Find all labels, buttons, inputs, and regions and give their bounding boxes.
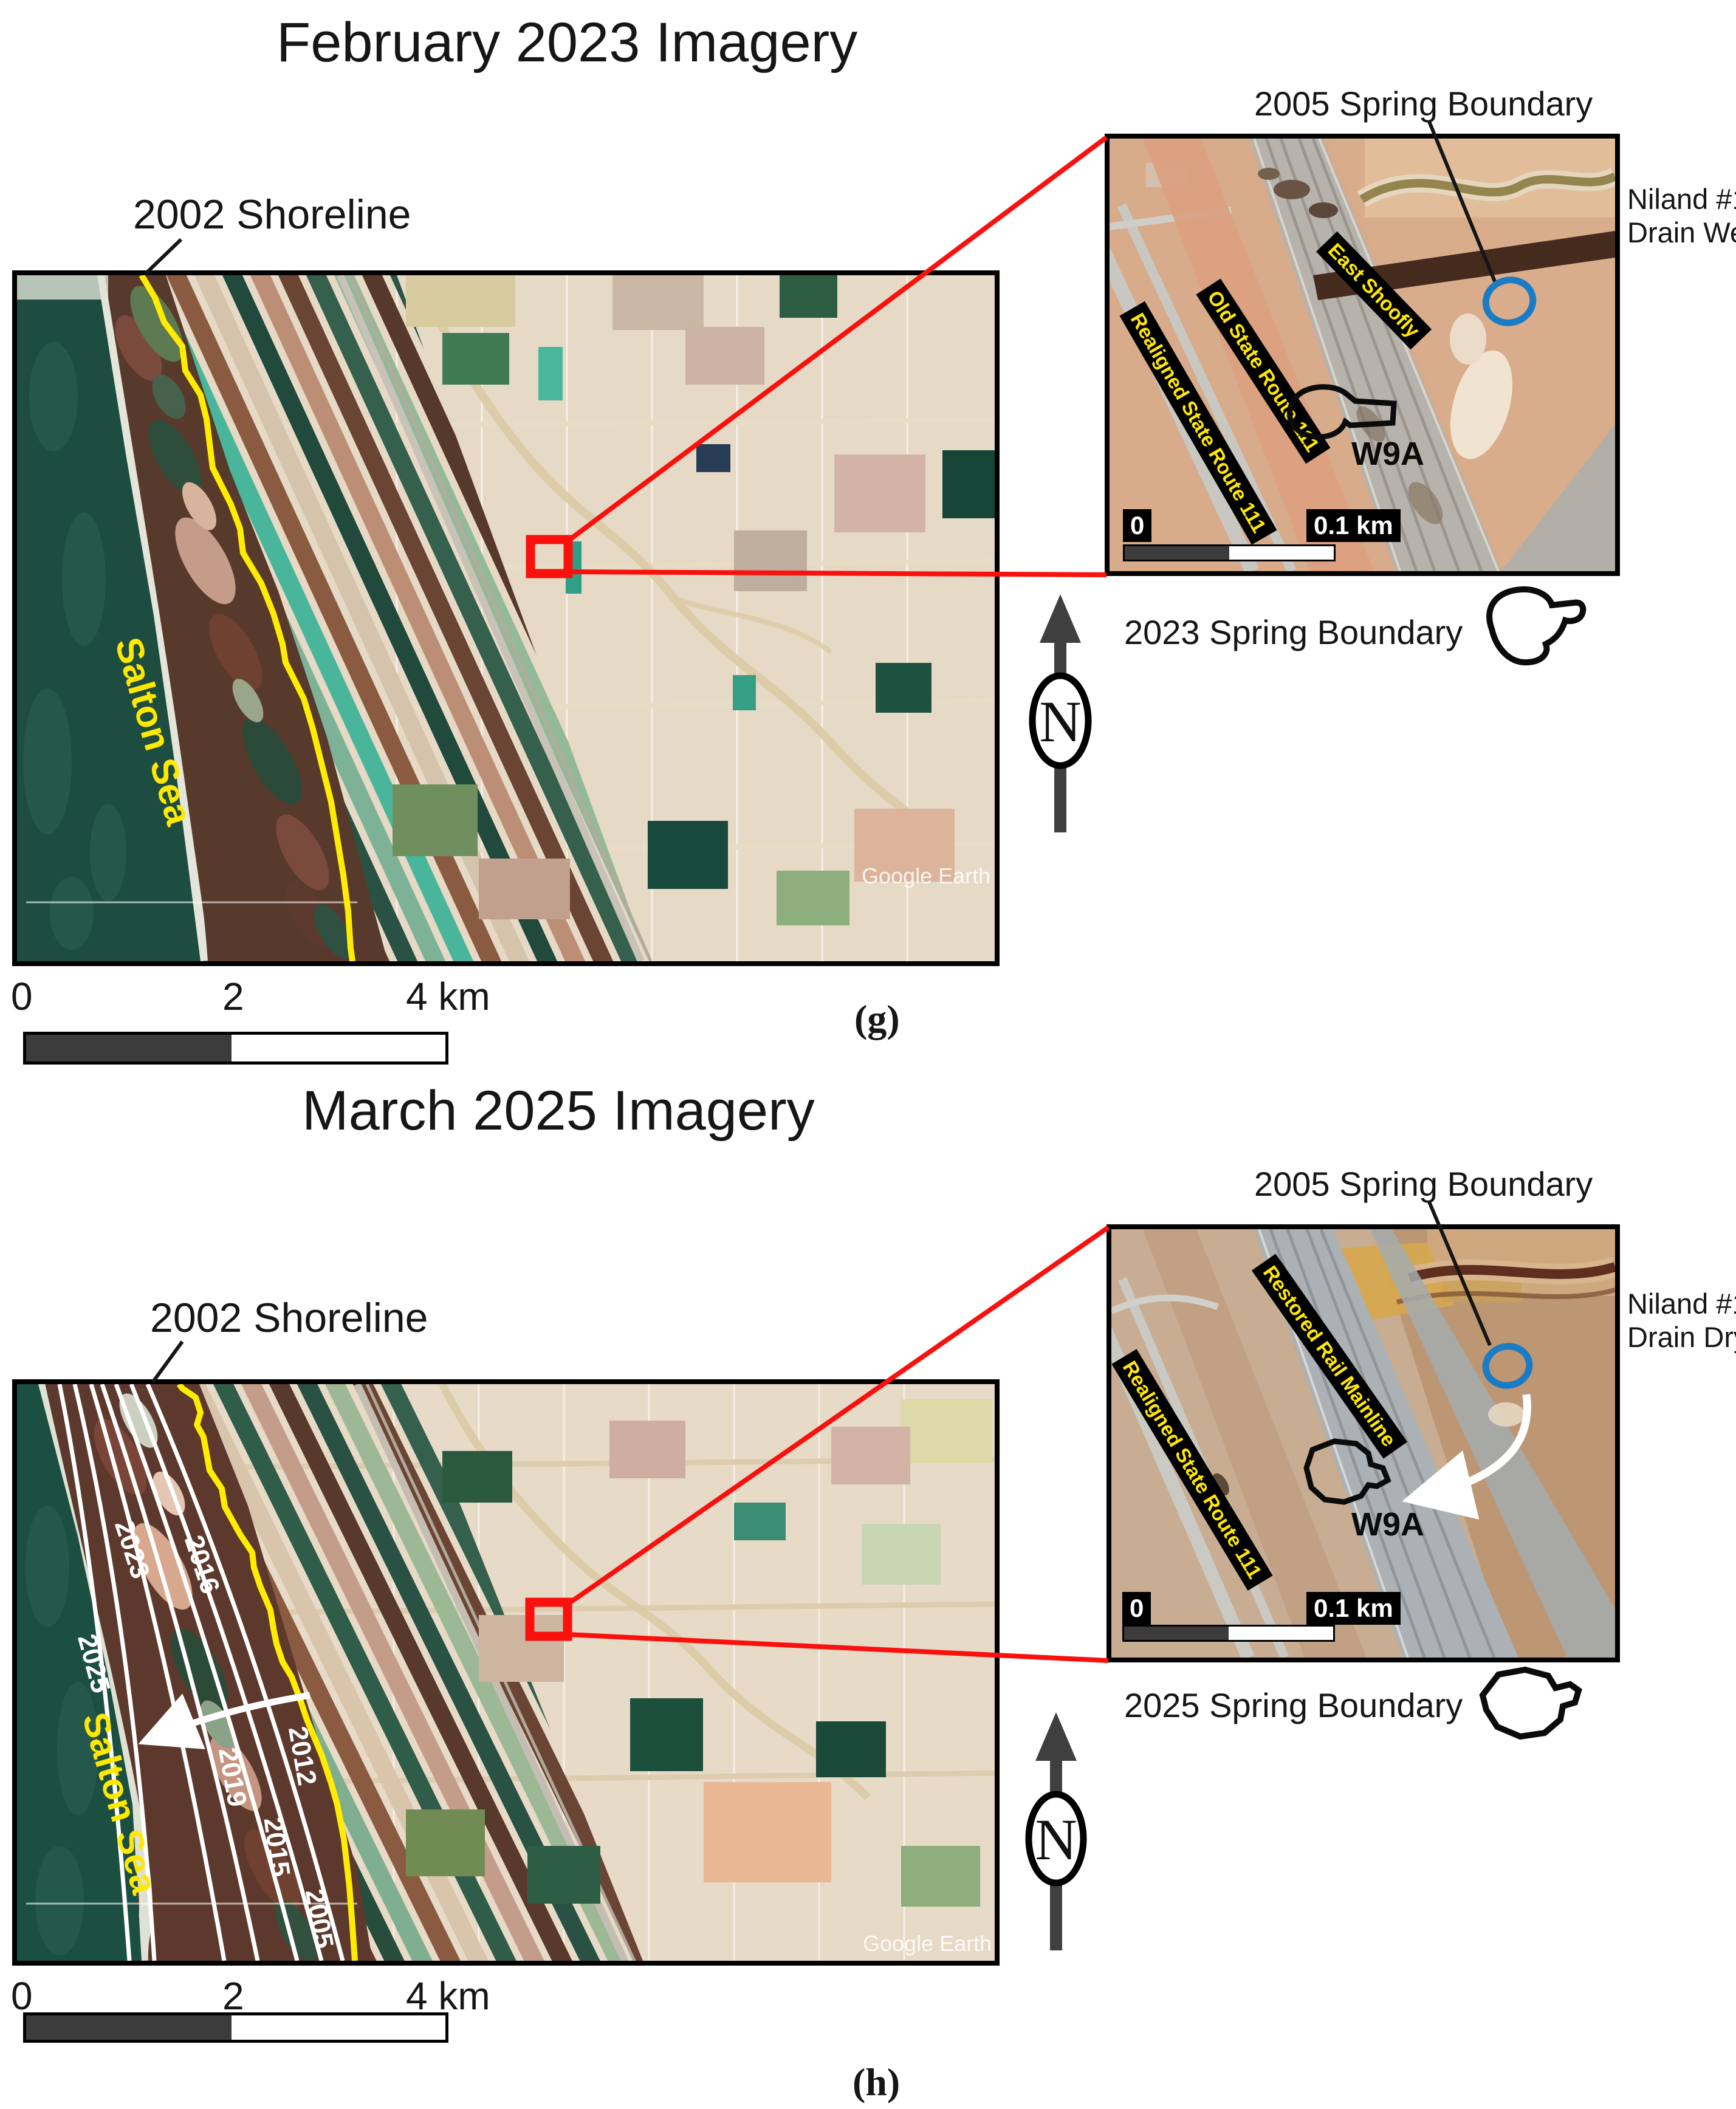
legend-2025-spring-boundary: 2025 Spring Boundary [1124,1685,1463,1725]
spring-label-w9a-g: W9A [1351,435,1424,473]
inset-map-2025: Restored Rail Mainline Realigned State R… [1106,1224,1620,1662]
panel-g-tag: (g) [854,996,900,1041]
scalebar-h-tick-0: 0 [11,1974,33,2018]
legend-2023-spring-boundary: 2023 Spring Boundary [1124,612,1463,652]
niland-line2-g: Drain Wet [1627,216,1736,249]
scalebar-g-tick-4km: 4 km [406,974,490,1019]
panel-h-tag: (h) [853,2060,900,2105]
inset-h-scalebar [1122,1625,1335,1642]
inset-map-2023: East Shoofly Old State Route 111 Realign… [1105,134,1620,576]
north-letter-h: N [1035,1807,1077,1872]
niland-line2-h: Drain Dry [1627,1320,1736,1354]
north-arrow-h: N [1029,1712,1083,1950]
inset-g-scalebar [1123,544,1336,561]
north-arrow-head-g [1040,594,1081,643]
spring-label-w9a-h: W9A [1351,1506,1424,1543]
niland-line1-h: Niland #1 [1627,1287,1736,1320]
scalebar-g-tick-2: 2 [222,974,244,1019]
scalebar-g [23,1032,448,1065]
inset-h-scale-zero: 0 [1122,1592,1151,1625]
inset-imagery-g [1110,139,1615,571]
niland-drain-label-h: Niland #1 Drain Dry [1627,1287,1736,1354]
north-arrow-g: N [1032,594,1088,832]
north-letter-g: N [1039,689,1081,754]
niland-line1-g: Niland #1 [1627,182,1736,216]
inset-h-title: 2005 Spring Boundary [1254,1164,1593,1204]
inset-h-scale-label: 0.1 km [1306,1592,1401,1625]
panel-g-shoreline-label: 2002 Shoreline [133,191,411,238]
niland-drain-label-g: Niland #1 Drain Wet [1627,182,1736,250]
pointer-shoreline-h [153,1342,182,1382]
inset-g-scale-label: 0.1 km [1306,509,1401,542]
inset-g-title: 2005 Spring Boundary [1254,84,1593,123]
satellite-imagery-g [17,275,995,961]
panel-h-title: March 2025 Imagery [302,1079,815,1143]
inset-g-scale-zero: 0 [1123,509,1151,542]
watermark-h: Google Earth [863,1931,992,1956]
niland-drain-channel-h [1409,1267,1615,1278]
pointer-shoreline-g [146,239,181,273]
satellite-map-feb-2023: Salton Sea Google Earth [12,270,1000,966]
watermark-g: Google Earth [862,863,990,889]
scalebar-h [23,2012,448,2043]
panel-g-title: February 2023 Imagery [276,11,857,75]
legend-blob-2025 [1483,1670,1579,1737]
scalebar-h-tick-4km: 4 km [406,1974,490,2018]
scalebar-h-tick-2: 2 [222,1974,244,2018]
north-arrow-head-h [1035,1712,1077,1761]
panel-h-shoreline-label: 2002 Shoreline [150,1294,428,1342]
legend-blob-2023 [1489,589,1583,662]
figure-page: February 2023 Imagery 2002 Shoreline [0,0,1736,2109]
satellite-map-mar-2025: Salton Sea 2023 2016 2025 2012 2019 2015… [12,1379,1000,1966]
satellite-imagery-h [17,1384,995,1961]
scalebar-g-tick-0: 0 [11,974,33,1019]
